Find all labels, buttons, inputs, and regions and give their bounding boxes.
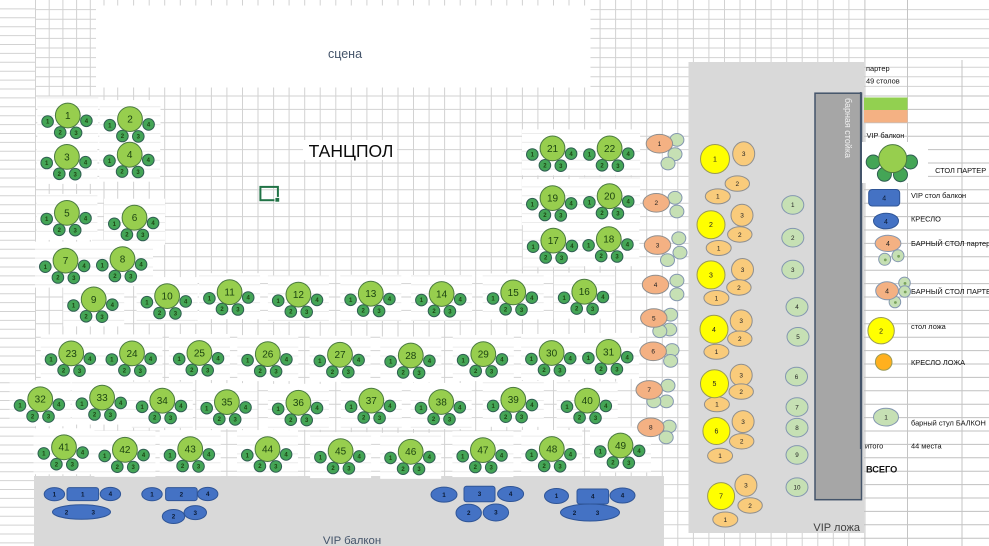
svg-text:2: 2 — [180, 491, 184, 498]
svg-text:27: 27 — [334, 350, 346, 361]
svg-text:2: 2 — [654, 200, 658, 207]
svg-text:3: 3 — [741, 267, 745, 274]
svg-text:2: 2 — [127, 115, 133, 126]
svg-text:20: 20 — [604, 192, 616, 203]
svg-text:2: 2 — [791, 235, 795, 242]
svg-text:33: 33 — [97, 393, 109, 404]
svg-text:14: 14 — [436, 289, 448, 300]
svg-text:2: 2 — [738, 336, 742, 343]
svg-text:7: 7 — [719, 494, 723, 501]
svg-text:3: 3 — [741, 419, 745, 426]
svg-text:БАРНЫЙ СТОЛ партер: БАРНЫЙ СТОЛ партер — [911, 239, 989, 248]
svg-text:КРЕСЛО ЛОЖА: КРЕСЛО ЛОЖА — [911, 358, 965, 367]
svg-text:8: 8 — [120, 255, 126, 266]
svg-text:1: 1 — [555, 493, 559, 500]
svg-text:17: 17 — [548, 236, 560, 247]
svg-text:2: 2 — [739, 389, 743, 396]
svg-text:7: 7 — [63, 256, 69, 267]
svg-text:1: 1 — [715, 349, 719, 356]
svg-text:5: 5 — [64, 208, 70, 219]
svg-text:48: 48 — [546, 444, 558, 455]
svg-text:3: 3 — [791, 267, 795, 274]
svg-text:44: 44 — [262, 445, 274, 456]
svg-text:3: 3 — [596, 510, 600, 517]
svg-text:28: 28 — [405, 351, 417, 362]
svg-text:40: 40 — [582, 396, 594, 407]
svg-text:2: 2 — [65, 510, 69, 517]
svg-text:1: 1 — [716, 194, 720, 201]
svg-text:4: 4 — [206, 491, 210, 498]
svg-text:ТАНЦПОЛ: ТАНЦПОЛ — [309, 141, 394, 161]
svg-text:12: 12 — [293, 290, 305, 301]
svg-text:7: 7 — [795, 404, 799, 411]
svg-text:2: 2 — [737, 285, 741, 292]
svg-text:18: 18 — [603, 235, 615, 246]
svg-text:31: 31 — [603, 347, 615, 358]
svg-text:3: 3 — [494, 510, 498, 517]
svg-text:барная стойка: барная стойка — [843, 98, 853, 158]
svg-text:1: 1 — [718, 453, 722, 460]
svg-text:1: 1 — [884, 415, 888, 422]
svg-text:36: 36 — [293, 398, 305, 409]
svg-text:1: 1 — [713, 157, 717, 164]
svg-text:2: 2 — [172, 514, 176, 521]
svg-text:6: 6 — [714, 429, 718, 436]
svg-text:VIP балкон: VIP балкон — [867, 131, 905, 140]
svg-text:3: 3 — [739, 373, 743, 380]
svg-text:30: 30 — [546, 348, 558, 359]
svg-text:1: 1 — [717, 245, 721, 252]
svg-text:5: 5 — [652, 315, 656, 322]
svg-text:СТОЛ ПАРТЕР: СТОЛ ПАРТЕР — [935, 166, 986, 175]
svg-text:23: 23 — [66, 349, 78, 360]
svg-text:2: 2 — [573, 510, 577, 517]
svg-text:3: 3 — [709, 272, 713, 279]
svg-text:29: 29 — [478, 350, 490, 361]
svg-text:1: 1 — [715, 295, 719, 302]
svg-text:24: 24 — [126, 349, 138, 360]
svg-text:10: 10 — [162, 292, 174, 303]
svg-text:КРЕСЛО: КРЕСЛО — [911, 215, 941, 224]
svg-text:барный стул БАЛКОН: барный стул БАЛКОН — [911, 419, 986, 428]
svg-text:1: 1 — [658, 141, 662, 148]
svg-text:1: 1 — [150, 491, 154, 498]
svg-text:4: 4 — [885, 288, 889, 295]
svg-text:стол ложа: стол ложа — [911, 322, 947, 331]
svg-text:2: 2 — [738, 232, 742, 239]
svg-text:2: 2 — [467, 510, 471, 517]
svg-text:2: 2 — [879, 329, 883, 336]
svg-text:3: 3 — [478, 491, 482, 498]
svg-text:7: 7 — [647, 387, 651, 394]
svg-text:19: 19 — [547, 194, 559, 205]
svg-text:3: 3 — [744, 483, 748, 490]
svg-text:1: 1 — [53, 491, 57, 498]
svg-text:32: 32 — [35, 395, 47, 406]
svg-text:4: 4 — [886, 241, 890, 248]
svg-text:15: 15 — [508, 288, 520, 299]
svg-text:4: 4 — [621, 493, 625, 500]
svg-text:4: 4 — [591, 494, 595, 501]
svg-text:43: 43 — [185, 445, 197, 456]
svg-text:4: 4 — [654, 282, 658, 289]
svg-text:5: 5 — [796, 334, 800, 341]
svg-text:4: 4 — [882, 196, 886, 203]
svg-text:1: 1 — [81, 491, 85, 498]
svg-text:VIP ложа: VIP ложа — [813, 522, 860, 534]
svg-text:21: 21 — [547, 144, 559, 155]
svg-text:35: 35 — [221, 398, 233, 409]
svg-text:38: 38 — [436, 397, 448, 408]
svg-text:итого: итого — [865, 442, 883, 451]
svg-text:42: 42 — [119, 445, 131, 456]
svg-text:4: 4 — [795, 304, 799, 311]
svg-text:13: 13 — [365, 289, 377, 300]
svg-text:3: 3 — [656, 242, 660, 249]
svg-text:6: 6 — [795, 374, 799, 381]
svg-text:VIP балкон: VIP балкон — [323, 535, 381, 546]
svg-text:4: 4 — [884, 219, 888, 226]
svg-text:16: 16 — [579, 287, 591, 298]
svg-text:46: 46 — [405, 447, 417, 458]
svg-text:3: 3 — [740, 213, 744, 220]
svg-text:1: 1 — [65, 111, 71, 122]
svg-text:6: 6 — [132, 213, 138, 224]
svg-text:47: 47 — [477, 446, 489, 457]
svg-text:сцена: сцена — [328, 47, 362, 61]
svg-text:11: 11 — [224, 288, 235, 299]
svg-text:VIP стол балкон: VIP стол балкон — [911, 191, 966, 200]
svg-text:8: 8 — [649, 425, 653, 432]
svg-text:4: 4 — [109, 491, 113, 498]
svg-text:9: 9 — [91, 295, 97, 306]
svg-text:25: 25 — [194, 348, 206, 359]
svg-text:49 столов: 49 столов — [866, 77, 900, 86]
svg-text:26: 26 — [262, 350, 274, 361]
svg-text:4: 4 — [509, 491, 513, 498]
svg-text:49: 49 — [615, 441, 627, 452]
svg-text:ВСЕГО: ВСЕГО — [866, 465, 897, 475]
svg-text:1: 1 — [723, 517, 727, 524]
svg-text:3: 3 — [739, 318, 743, 325]
svg-text:3: 3 — [742, 151, 746, 158]
svg-text:44 места: 44 места — [911, 442, 942, 451]
svg-text:2: 2 — [709, 222, 713, 229]
svg-text:10: 10 — [793, 484, 801, 491]
svg-text:6: 6 — [651, 349, 655, 356]
svg-text:41: 41 — [58, 443, 70, 454]
svg-text:4: 4 — [712, 327, 716, 334]
svg-text:22: 22 — [604, 144, 616, 155]
svg-text:1: 1 — [715, 402, 719, 409]
svg-text:2: 2 — [748, 503, 752, 510]
svg-text:2: 2 — [740, 439, 744, 446]
svg-text:45: 45 — [335, 447, 347, 458]
svg-text:5: 5 — [713, 381, 717, 388]
svg-text:1: 1 — [791, 202, 795, 209]
svg-text:партер: партер — [866, 64, 890, 73]
svg-text:34: 34 — [157, 396, 169, 407]
svg-text:39: 39 — [508, 395, 520, 406]
svg-text:8: 8 — [795, 425, 799, 432]
svg-text:3: 3 — [194, 510, 198, 517]
svg-text:4: 4 — [127, 150, 133, 161]
svg-text:БАРНЫЙ СТОЛ ПАРТЕР: БАРНЫЙ СТОЛ ПАРТЕР — [911, 287, 989, 296]
svg-text:2: 2 — [735, 181, 739, 188]
svg-text:9: 9 — [795, 452, 799, 459]
svg-text:37: 37 — [366, 396, 378, 407]
svg-text:3: 3 — [64, 152, 70, 163]
svg-text:1: 1 — [442, 492, 446, 499]
svg-text:3: 3 — [92, 510, 96, 517]
